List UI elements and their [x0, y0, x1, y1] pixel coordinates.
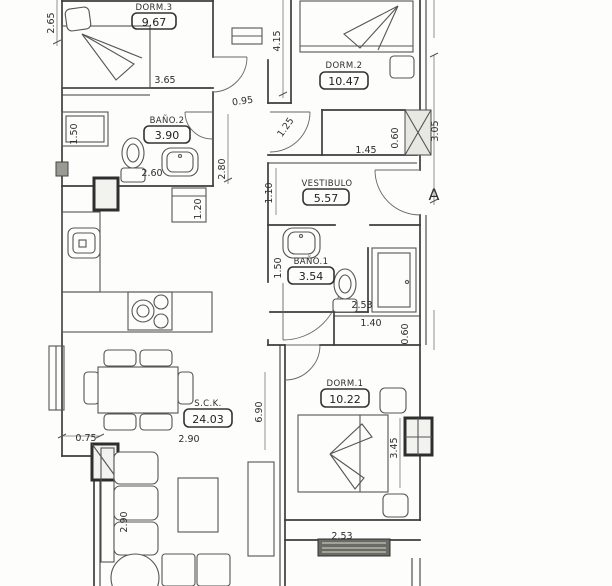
- floor-plan-svg: DORM.3 9.67 DORM.2 10.47 BAÑO.2 3.90 VES…: [0, 0, 612, 586]
- dim-0_95: 0.95: [231, 95, 253, 109]
- dim-2_65: 2.65: [46, 12, 57, 33]
- sink-kitchen: [68, 228, 100, 258]
- dim-1_25: 1.25: [275, 116, 296, 140]
- side-table-round: [111, 554, 159, 586]
- dim-2_60: 2.60: [141, 168, 162, 179]
- armchair: [197, 554, 230, 586]
- sink-bano1: [283, 228, 320, 258]
- room-name-dorm1: DORM.1: [327, 379, 364, 389]
- dim-6_90: 6.90: [254, 401, 265, 422]
- sideboard: [248, 462, 274, 556]
- dim-2_53-window: 2.53: [331, 531, 352, 542]
- pillow-dorm3: [65, 6, 92, 31]
- bed-dorm3: [62, 26, 150, 88]
- sink-bano2: [162, 148, 198, 176]
- sofa-cushion: [114, 452, 158, 484]
- dim-1_10: 1.10: [264, 182, 275, 203]
- nightstand-dorm1-top: [380, 388, 406, 413]
- dim-1_50-bano2: 1.50: [69, 123, 80, 144]
- armchair: [162, 554, 195, 586]
- furniture-dining: [84, 350, 193, 430]
- stove: [128, 292, 172, 330]
- room-name-bano2: BAÑO.2: [150, 115, 185, 126]
- room-area-bano2: 3.90: [155, 129, 180, 142]
- door-dorm3: [212, 57, 247, 92]
- furniture-bano2: [62, 112, 206, 222]
- room-area-bano1: 3.54: [299, 270, 324, 283]
- doors: [185, 57, 420, 380]
- room-area-vestibulo: 5.57: [314, 192, 339, 205]
- room-name-dorm2: DORM.2: [326, 61, 363, 71]
- chair: [84, 372, 99, 404]
- dim-0_75: 0.75: [75, 433, 96, 444]
- room-name-dorm3: DORM.3: [136, 3, 173, 13]
- wall-block: [56, 162, 68, 176]
- chair: [178, 372, 193, 404]
- dim-0_60-closet: 0.60: [390, 127, 401, 148]
- dim-3_45: 3.45: [389, 437, 400, 458]
- floor-plan-page: DORM.3 9.67 DORM.2 10.47 BAÑO.2 3.90 VES…: [0, 0, 612, 586]
- room-area-dorm3: 9.67: [142, 16, 167, 29]
- dim-2_90-sofa: 2.90: [119, 511, 130, 532]
- dim-1_45: 1.45: [355, 145, 376, 156]
- chair: [104, 414, 136, 430]
- room-name-sck: S.C.K.: [194, 399, 221, 409]
- furniture-kitchen: [62, 212, 212, 332]
- room-name-vestibulo: VESTIBULO: [301, 179, 352, 189]
- dim-2_90-h: 2.90: [178, 434, 199, 445]
- nightstand-dorm2: [390, 56, 414, 78]
- dim-2_53-bano1: 2.53: [351, 300, 372, 311]
- chair: [104, 350, 136, 366]
- door-bano2: [185, 112, 212, 139]
- furniture-dorm3: [62, 6, 150, 88]
- dim-1_20: 1.20: [193, 198, 204, 219]
- door-entrance: [375, 170, 420, 215]
- dining-table: [98, 367, 178, 413]
- nightstand-dorm1-bottom: [383, 494, 408, 517]
- dim-1_50-bano1: 1.50: [273, 257, 284, 278]
- room-area-sck: 24.03: [192, 413, 224, 426]
- room-name-bano1: BAÑO.1: [294, 256, 329, 267]
- section-marker-a: A: [429, 185, 440, 204]
- dim-3_65: 3.65: [154, 75, 175, 86]
- chair: [140, 414, 172, 430]
- dim-1_40: 1.40: [360, 318, 381, 329]
- room-area-dorm1: 10.22: [329, 393, 361, 406]
- dim-3_05: 3.05: [430, 120, 441, 141]
- bed-dorm1: [298, 415, 388, 492]
- room-area-dorm2: 10.47: [328, 75, 360, 88]
- dim-2_80: 2.80: [217, 158, 228, 179]
- wardrobe-bano1: [372, 248, 416, 312]
- pillar-kitchen: [94, 178, 118, 210]
- chair: [140, 350, 172, 366]
- dim-4_15: 4.15: [272, 30, 283, 51]
- coffee-table: [178, 478, 218, 532]
- dim-0_60-niche: 0.60: [400, 323, 411, 344]
- door-dorm1: [285, 345, 320, 380]
